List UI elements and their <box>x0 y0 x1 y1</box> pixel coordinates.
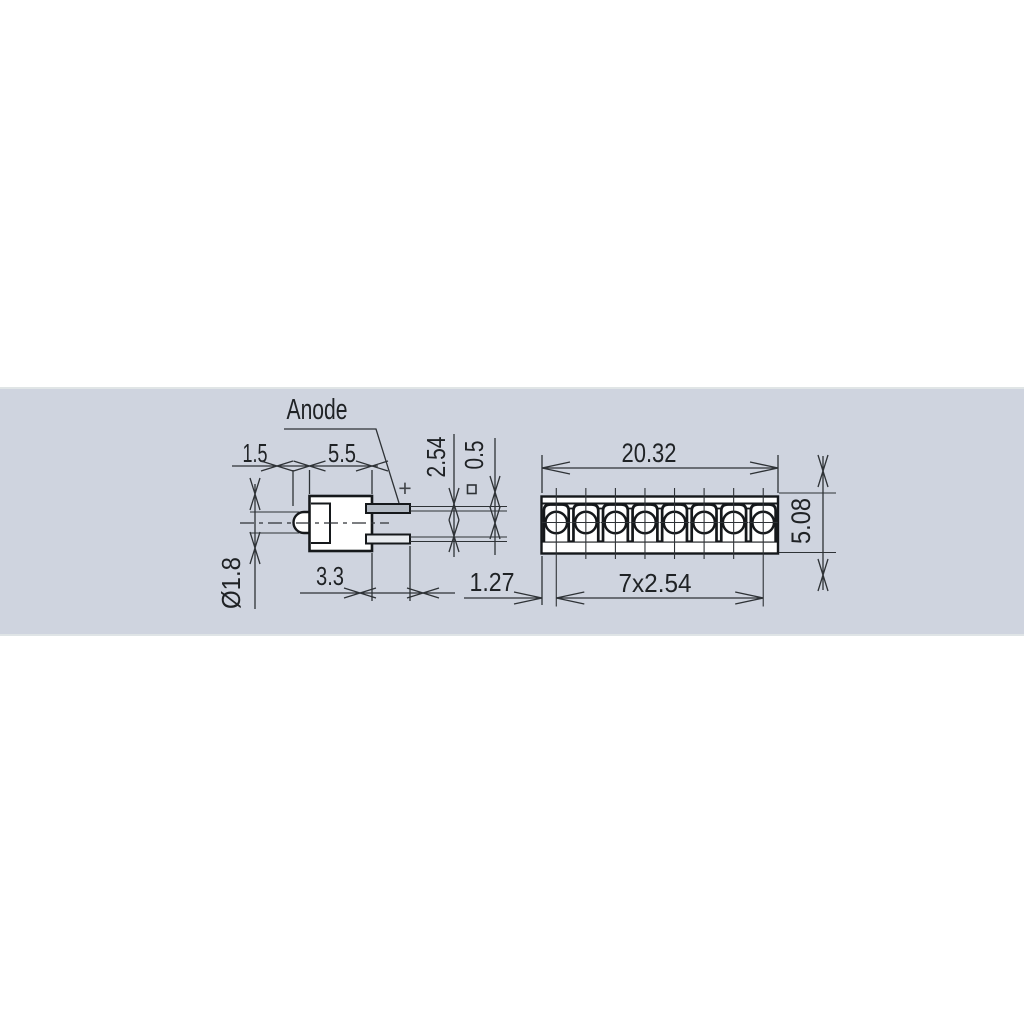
cathode-pin <box>366 535 410 544</box>
side-view: Anode 1.5 5.5 <box>216 394 507 609</box>
anode-pin <box>366 504 410 513</box>
square-section-symbol <box>468 485 477 494</box>
dim-pin-span: 7x2.54 <box>619 568 692 598</box>
technical-drawing: Anode 1.5 5.5 <box>0 389 1024 634</box>
front-view: 20.32 5.08 1.27 7x2.54 <box>464 438 836 607</box>
dim-pin-thickness: 0.5 <box>459 441 489 470</box>
anode-label: Anode <box>287 394 348 426</box>
pin-projection-lines <box>410 507 507 542</box>
dim-pin-pitch: 2.54 <box>421 437 451 478</box>
plus-polarity-symbol: + <box>398 475 411 501</box>
dim-overall-width: 20.32 <box>622 438 677 468</box>
dim-lens-diameter: Ø1.8 <box>216 557 246 609</box>
diagram-band: Anode 1.5 5.5 <box>0 387 1024 636</box>
dim-pin-length: 3.3 <box>316 561 344 591</box>
dim-lens-protrusion: 1.5 <box>243 438 268 468</box>
page: Anode 1.5 5.5 <box>0 0 1024 1024</box>
dim-overall-height: 5.08 <box>786 498 816 544</box>
dim-edge-offset: 1.27 <box>470 567 515 597</box>
dim-body-depth: 5.5 <box>328 438 356 468</box>
